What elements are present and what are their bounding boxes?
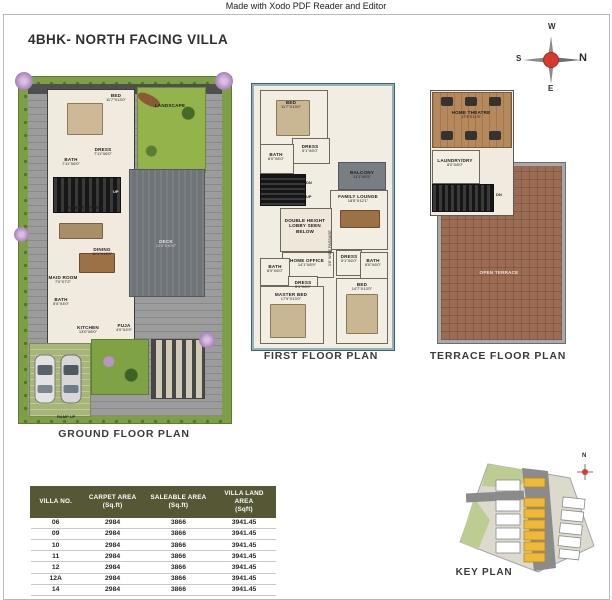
room-puja: PUJA 4'0"X4'9" — [111, 323, 137, 333]
theatre-seat — [465, 97, 477, 106]
room-dress-1: DRESS 5'1"X6'0" — [294, 144, 326, 154]
table-row: 11298438663941.45 — [31, 551, 276, 562]
table-cell: 14 — [31, 584, 81, 595]
staircase-dn — [432, 184, 494, 212]
room-home-theatre: HOME THEATRE 17'3"X11'9" — [442, 110, 500, 120]
table-cell: 3941.45 — [213, 584, 276, 595]
ground-floor-caption: GROUND FLOOR PLAN — [18, 428, 230, 440]
key-plan-north-label: N — [582, 453, 586, 459]
room-family-lounge: FAMILY LOUNGE 18'5"X12'1" — [330, 194, 386, 204]
landscape-label: LANDSCAPE — [143, 103, 197, 108]
table-cell: 12A — [31, 573, 81, 584]
compass-w-label: W — [548, 22, 556, 31]
table-cell: 2984 — [81, 573, 144, 584]
villa-area-table: VILLA NO. CARPET AREA (Sq.ft) SALEABLE A… — [30, 486, 276, 596]
blossom-tree — [15, 72, 33, 90]
table-cell: 3866 — [144, 584, 212, 595]
terrace-floor-caption: TERRACE FLOOR PLAN — [428, 350, 568, 362]
room-home-office: HOME OFFICE 14'1"X8'9" — [284, 258, 330, 268]
paved-steps — [151, 339, 205, 399]
blossom-tree — [14, 227, 29, 242]
compass-rose: W N S E — [515, 22, 587, 94]
sofa-furniture — [59, 223, 103, 239]
room-bed: BED 11'7"X13'0" — [91, 93, 141, 103]
table-cell: 2984 — [81, 562, 144, 573]
room-master-bed: MASTER BED 17'9"X13'0" — [264, 292, 318, 302]
room-dress: DRESS 7'11"X6'0" — [85, 147, 121, 157]
theatre-seat — [441, 131, 453, 140]
room-bed-1: BED 11'7"X13'0" — [266, 100, 316, 110]
table-header: VILLA NO. CARPET AREA (Sq.ft) SALEABLE A… — [31, 487, 276, 518]
table-cell: 11 — [31, 551, 81, 562]
key-plan: N — [452, 458, 602, 576]
table-row: 10298438663941.45 — [31, 539, 276, 550]
first-floor-caption: FIRST FLOOR PLAN — [252, 350, 390, 362]
flower-garden — [91, 339, 149, 395]
table-row: 14298438663941.45 — [31, 584, 276, 595]
room-kitchen: KITCHEN 13'0"X8'0" — [65, 325, 111, 335]
col-carpet-area: CARPET AREA (Sq.ft) — [81, 487, 144, 518]
bed-furniture — [346, 294, 378, 334]
ground-floor-plan: BED 11'7"X13'0" DRESS 7'11"X6'0" BATH 7'… — [18, 76, 232, 424]
table-row: 12298438663941.45 — [31, 562, 276, 573]
table-cell: 3866 — [144, 539, 212, 550]
compass-e-label: E — [548, 84, 553, 93]
room-bath-2: BATH 8'0"X6'0" — [360, 258, 386, 268]
table-cell: 3941.45 — [213, 517, 276, 528]
table-cell: 2984 — [81, 539, 144, 550]
terrace-floor-plan: HOME THEATRE 17'3"X11'9" LAUNDRY/DRY 8'0… — [428, 88, 562, 340]
table-cell: 2984 — [81, 528, 144, 539]
table-body: 06298438663941.4509298438663941.45102984… — [31, 517, 276, 595]
page-title: 4BHK- NORTH FACING VILLA — [28, 32, 228, 47]
col-saleable-area: SALEABLE AREA (Sq.ft) — [144, 487, 212, 518]
col-villa-land-area: VILLA LAND AREA (Sqft) — [213, 487, 276, 518]
bed-furniture — [67, 103, 103, 135]
first-floor-plan: BED 11'7"X13'0" DRESS 5'1"X6'0" BATH 8'0… — [252, 84, 394, 350]
table-cell: 3866 — [144, 517, 212, 528]
passage-label: 3'6" WIDE PASSAGE — [328, 218, 332, 278]
table-cell: 3941.45 — [213, 528, 276, 539]
theatre-seat — [465, 131, 477, 140]
room-bath-1: BATH 8'0"X6'0" — [262, 152, 290, 162]
table-cell: 2984 — [81, 551, 144, 562]
table-row: 09298438663941.45 — [31, 528, 276, 539]
compass-s-label: S — [516, 54, 521, 63]
room-balcony: BALCONY 11'1"X5'5" — [340, 170, 384, 180]
lounge-sofa — [340, 210, 380, 228]
open-terrace-label: OPEN TERRACE — [468, 270, 530, 275]
ramp-up-label: RAMP UP — [57, 414, 75, 419]
room-bath: BATH 7'11"X6'0" — [55, 157, 87, 167]
table-row: 06298438663941.45 — [31, 517, 276, 528]
table-cell: 3866 — [144, 528, 212, 539]
theatre-seat — [489, 131, 501, 140]
blossom-tree — [199, 332, 215, 348]
watermark-text: Made with Xodo PDF Reader and Editor — [0, 1, 612, 11]
car-icon — [59, 353, 83, 410]
table-cell: 3941.45 — [213, 551, 276, 562]
deck-area — [129, 169, 205, 297]
room-laundry: LAUNDRY/DRY 8'0"X8'0" — [434, 158, 476, 168]
table-cell: 3941.45 — [213, 573, 276, 584]
table-cell: 09 — [31, 528, 81, 539]
key-plan-map — [452, 458, 602, 576]
car-icon — [33, 353, 57, 410]
room-family-living: FAMILY LIVING 11'7"X13'2" — [61, 205, 109, 215]
staircase — [260, 174, 306, 206]
pdf-page: { "watermark": "Made with Xodo PDF Reade… — [0, 0, 612, 600]
col-villa-no: VILLA NO. — [31, 487, 81, 518]
table-cell: 3941.45 — [213, 562, 276, 573]
room-bath-2: BATH 5'0"X4'0" — [47, 297, 75, 307]
bed-furniture — [270, 304, 306, 338]
theatre-seat — [489, 97, 501, 106]
table-cell: 12 — [31, 562, 81, 573]
room-bath-3: BATH 8'0"X6'0" — [262, 264, 288, 274]
table-cell: 3941.45 — [213, 539, 276, 550]
room-dining: DINING 11'1"X13'9" — [81, 247, 123, 257]
table-cell: 06 — [31, 517, 81, 528]
stairs-dn-label: DN — [306, 180, 312, 185]
stairs-up-label: UP — [113, 189, 119, 194]
table-row: 12A298438663941.45 — [31, 573, 276, 584]
key-plan-compass-icon — [577, 464, 593, 480]
home-theatre-area — [432, 92, 512, 148]
table-cell: 2984 — [81, 517, 144, 528]
theatre-seat — [441, 97, 453, 106]
stairs-dn-label: DN — [496, 192, 502, 197]
table-cell: 10 — [31, 539, 81, 550]
room-dress-2: DRESS 5'1"X6'0" — [338, 254, 360, 264]
deck-label: DECK 12'0"X40'0" — [141, 239, 191, 249]
stairs-up-label: UP — [306, 194, 312, 199]
room-dress-3: DRESS 5'1"X6'0" — [290, 280, 316, 290]
compass-n-label: N — [579, 52, 587, 64]
blossom-tree — [215, 72, 233, 90]
table-cell: 3866 — [144, 573, 212, 584]
room-bed-2: BED 14'7"X13'0" — [342, 282, 382, 292]
table-cell: 3866 — [144, 551, 212, 562]
table-cell: 2984 — [81, 584, 144, 595]
double-height-lobby-label: DOUBLE HEIGHT LOBBY SEEN BELOW — [282, 218, 328, 234]
table-cell: 3866 — [144, 562, 212, 573]
room-maid: MAID ROOM 7'0"X7'2" — [47, 275, 79, 285]
